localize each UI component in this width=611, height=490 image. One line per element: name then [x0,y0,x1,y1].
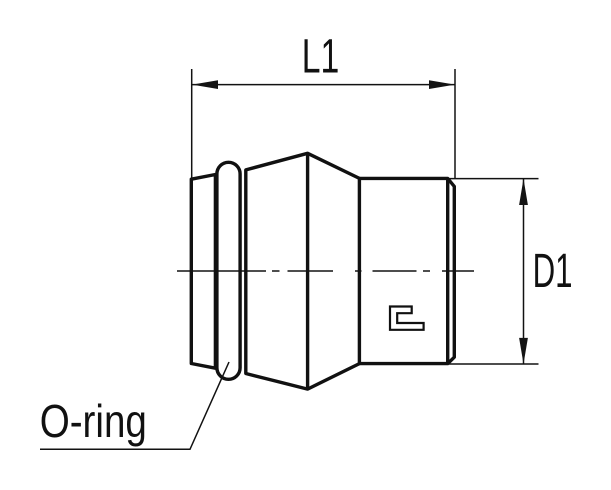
svg-text:L1: L1 [302,28,340,82]
svg-text:O-ring: O-ring [40,396,147,447]
svg-text:D1: D1 [533,243,573,298]
